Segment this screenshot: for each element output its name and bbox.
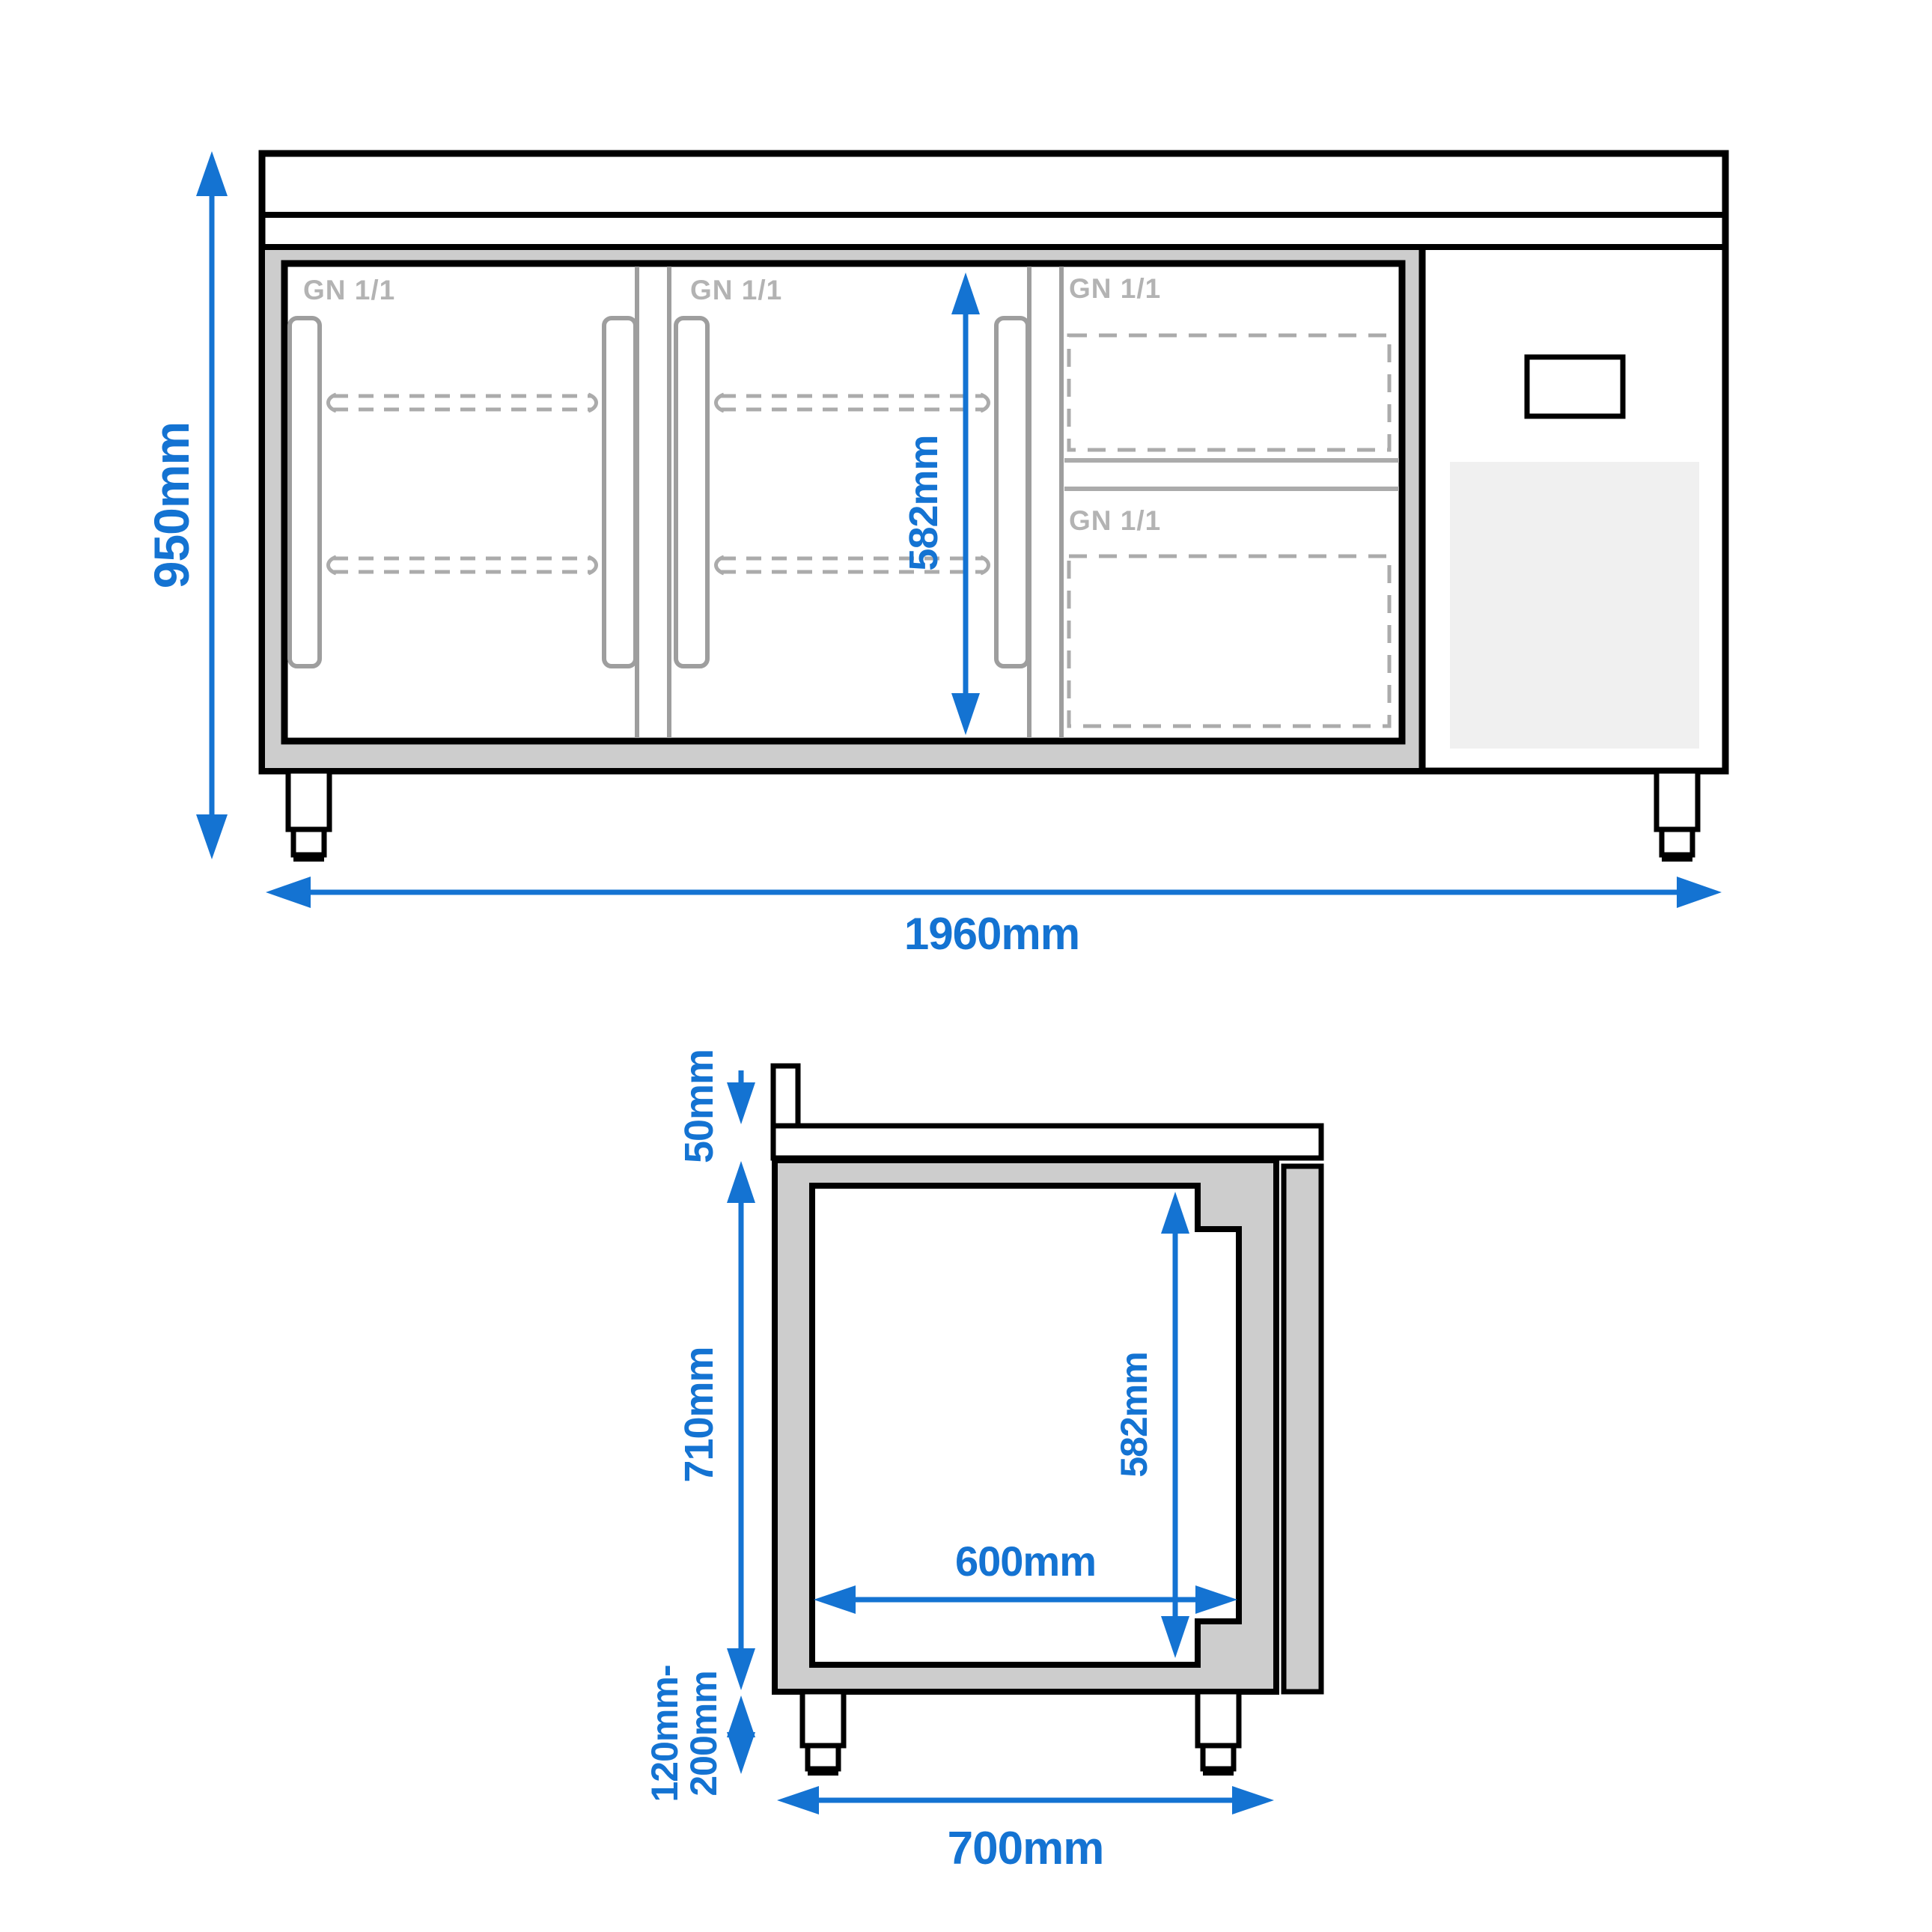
arrow-left-icon [266, 877, 311, 908]
door2-left-handle [676, 318, 707, 666]
leg-body [1657, 771, 1698, 829]
leg-foot [293, 829, 324, 855]
arrow-down-icon [727, 1732, 755, 1774]
dim-label-1960: 1960mm [904, 909, 1079, 959]
arrow-up-icon [727, 1695, 755, 1737]
dim-label-feet-min: 120mm- [644, 1666, 686, 1803]
dim-label-feet-max: 200mm [683, 1671, 725, 1796]
technical-drawing: GN 1/1 GN 1/1 GN 1/1 GN 1/1 [0, 0, 1932, 1932]
leg-body [1198, 1692, 1239, 1746]
dim-label-582-front: 582mm [901, 435, 946, 570]
front-right-leg [1657, 771, 1698, 862]
dimension-depth-700: 700mm [777, 1786, 1274, 1874]
door1-left-handle [290, 318, 320, 666]
dim-label-950: 950mm [144, 422, 199, 589]
arrow-left-icon [777, 1786, 819, 1814]
dimension-width-1960: 1960mm [266, 877, 1722, 959]
dim-label-582-side: 582mm [1113, 1352, 1155, 1477]
leg-foot-cap [1662, 853, 1692, 862]
leg-body [288, 771, 329, 829]
side-front-leg [802, 1692, 844, 1776]
leg-foot-cap [808, 1767, 838, 1776]
leg-foot [808, 1746, 838, 1769]
dim-label-710: 710mm [677, 1347, 722, 1482]
gn-label-drawer-bottom: GN 1/1 [1069, 505, 1161, 536]
dim-label-50: 50mm [677, 1049, 722, 1163]
dimension-height-950: 950mm [144, 151, 228, 859]
leg-foot [1203, 1746, 1234, 1769]
door2-right-handle [996, 318, 1028, 666]
control-display [1527, 357, 1623, 416]
leg-body [802, 1692, 844, 1746]
leg-foot-cap [293, 853, 324, 862]
arrow-up-icon [196, 151, 228, 196]
worktop-side [773, 1126, 1321, 1158]
dimension-worktop-50: 50mm [677, 1049, 755, 1163]
dimension-feet-120-200: 120mm- 200mm [644, 1666, 755, 1803]
dim-label-600: 600mm [955, 1538, 1096, 1585]
arrow-down-icon [196, 814, 228, 859]
front-view: GN 1/1 GN 1/1 GN 1/1 GN 1/1 [144, 151, 1725, 959]
door1-right-handle [604, 318, 636, 666]
arrow-right-icon [1677, 877, 1722, 908]
leg-foot [1662, 829, 1692, 855]
leg-foot-cap [1203, 1767, 1234, 1776]
backsplash-upstand [773, 1066, 798, 1126]
gn-label-door1: GN 1/1 [303, 275, 395, 305]
gn-label-drawer-top: GN 1/1 [1069, 273, 1161, 304]
dim-label-700: 700mm [948, 1823, 1104, 1874]
compressor-vent-panel [1450, 462, 1699, 749]
side-rear-leg [1198, 1692, 1239, 1776]
arrow-up-icon [727, 1161, 755, 1203]
door-side-profile [1284, 1166, 1321, 1692]
arrow-down-icon [727, 1648, 755, 1690]
dimension-body-height-710: 710mm [677, 1161, 755, 1690]
front-left-leg [288, 771, 329, 862]
gn-label-door2: GN 1/1 [690, 275, 782, 305]
side-view: 50mm 710mm 582mm 600mm 120mm [644, 1049, 1321, 1874]
arrow-right-icon [1232, 1786, 1274, 1814]
arrow-down-icon [727, 1082, 755, 1124]
page: GN 1/1 GN 1/1 GN 1/1 GN 1/1 [0, 0, 1932, 1932]
